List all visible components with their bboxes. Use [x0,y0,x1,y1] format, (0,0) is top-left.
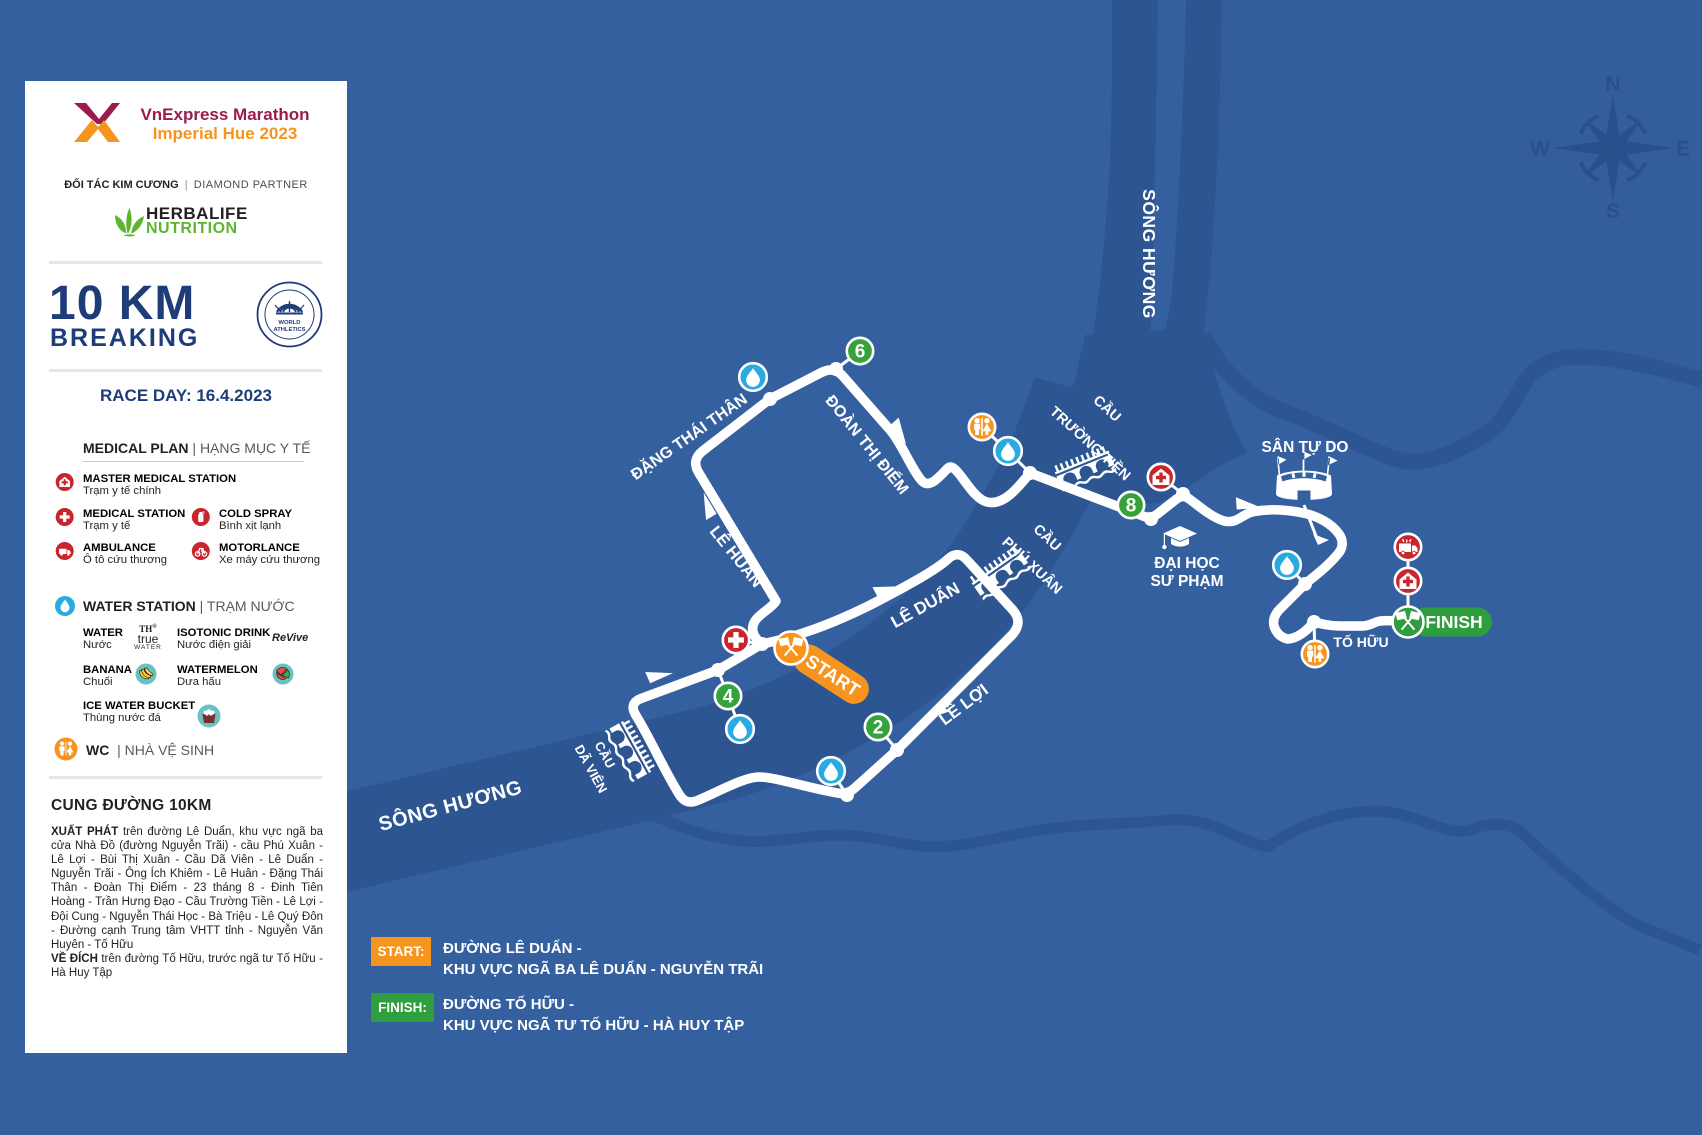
svg-text:W: W [1530,138,1550,161]
svg-text:8: 8 [1126,496,1137,517]
svg-text:6: 6 [855,342,866,363]
svg-text:2: 2 [873,718,884,739]
svg-text:TỐ HỮU: TỐ HỮU [1333,633,1388,650]
svg-text:E: E [1676,138,1690,161]
svg-text:ATHLETICS: ATHLETICS [273,327,305,333]
svg-text:SÔNG HƯƠNG: SÔNG HƯƠNG [1139,189,1160,319]
svg-text:WORLD: WORLD [279,320,301,326]
svg-text:N: N [1605,73,1620,96]
svg-text:4: 4 [723,687,734,708]
svg-text:SƯ PHẠM: SƯ PHẠM [1150,573,1223,590]
svg-text:S: S [1606,200,1620,223]
svg-text:ĐẶNG THÁI THÂN: ĐẶNG THÁI THÂN [627,389,751,484]
svg-text:FINISH: FINISH [1425,612,1482,632]
svg-text:ĐẠI HỌC: ĐẠI HỌC [1154,555,1219,572]
